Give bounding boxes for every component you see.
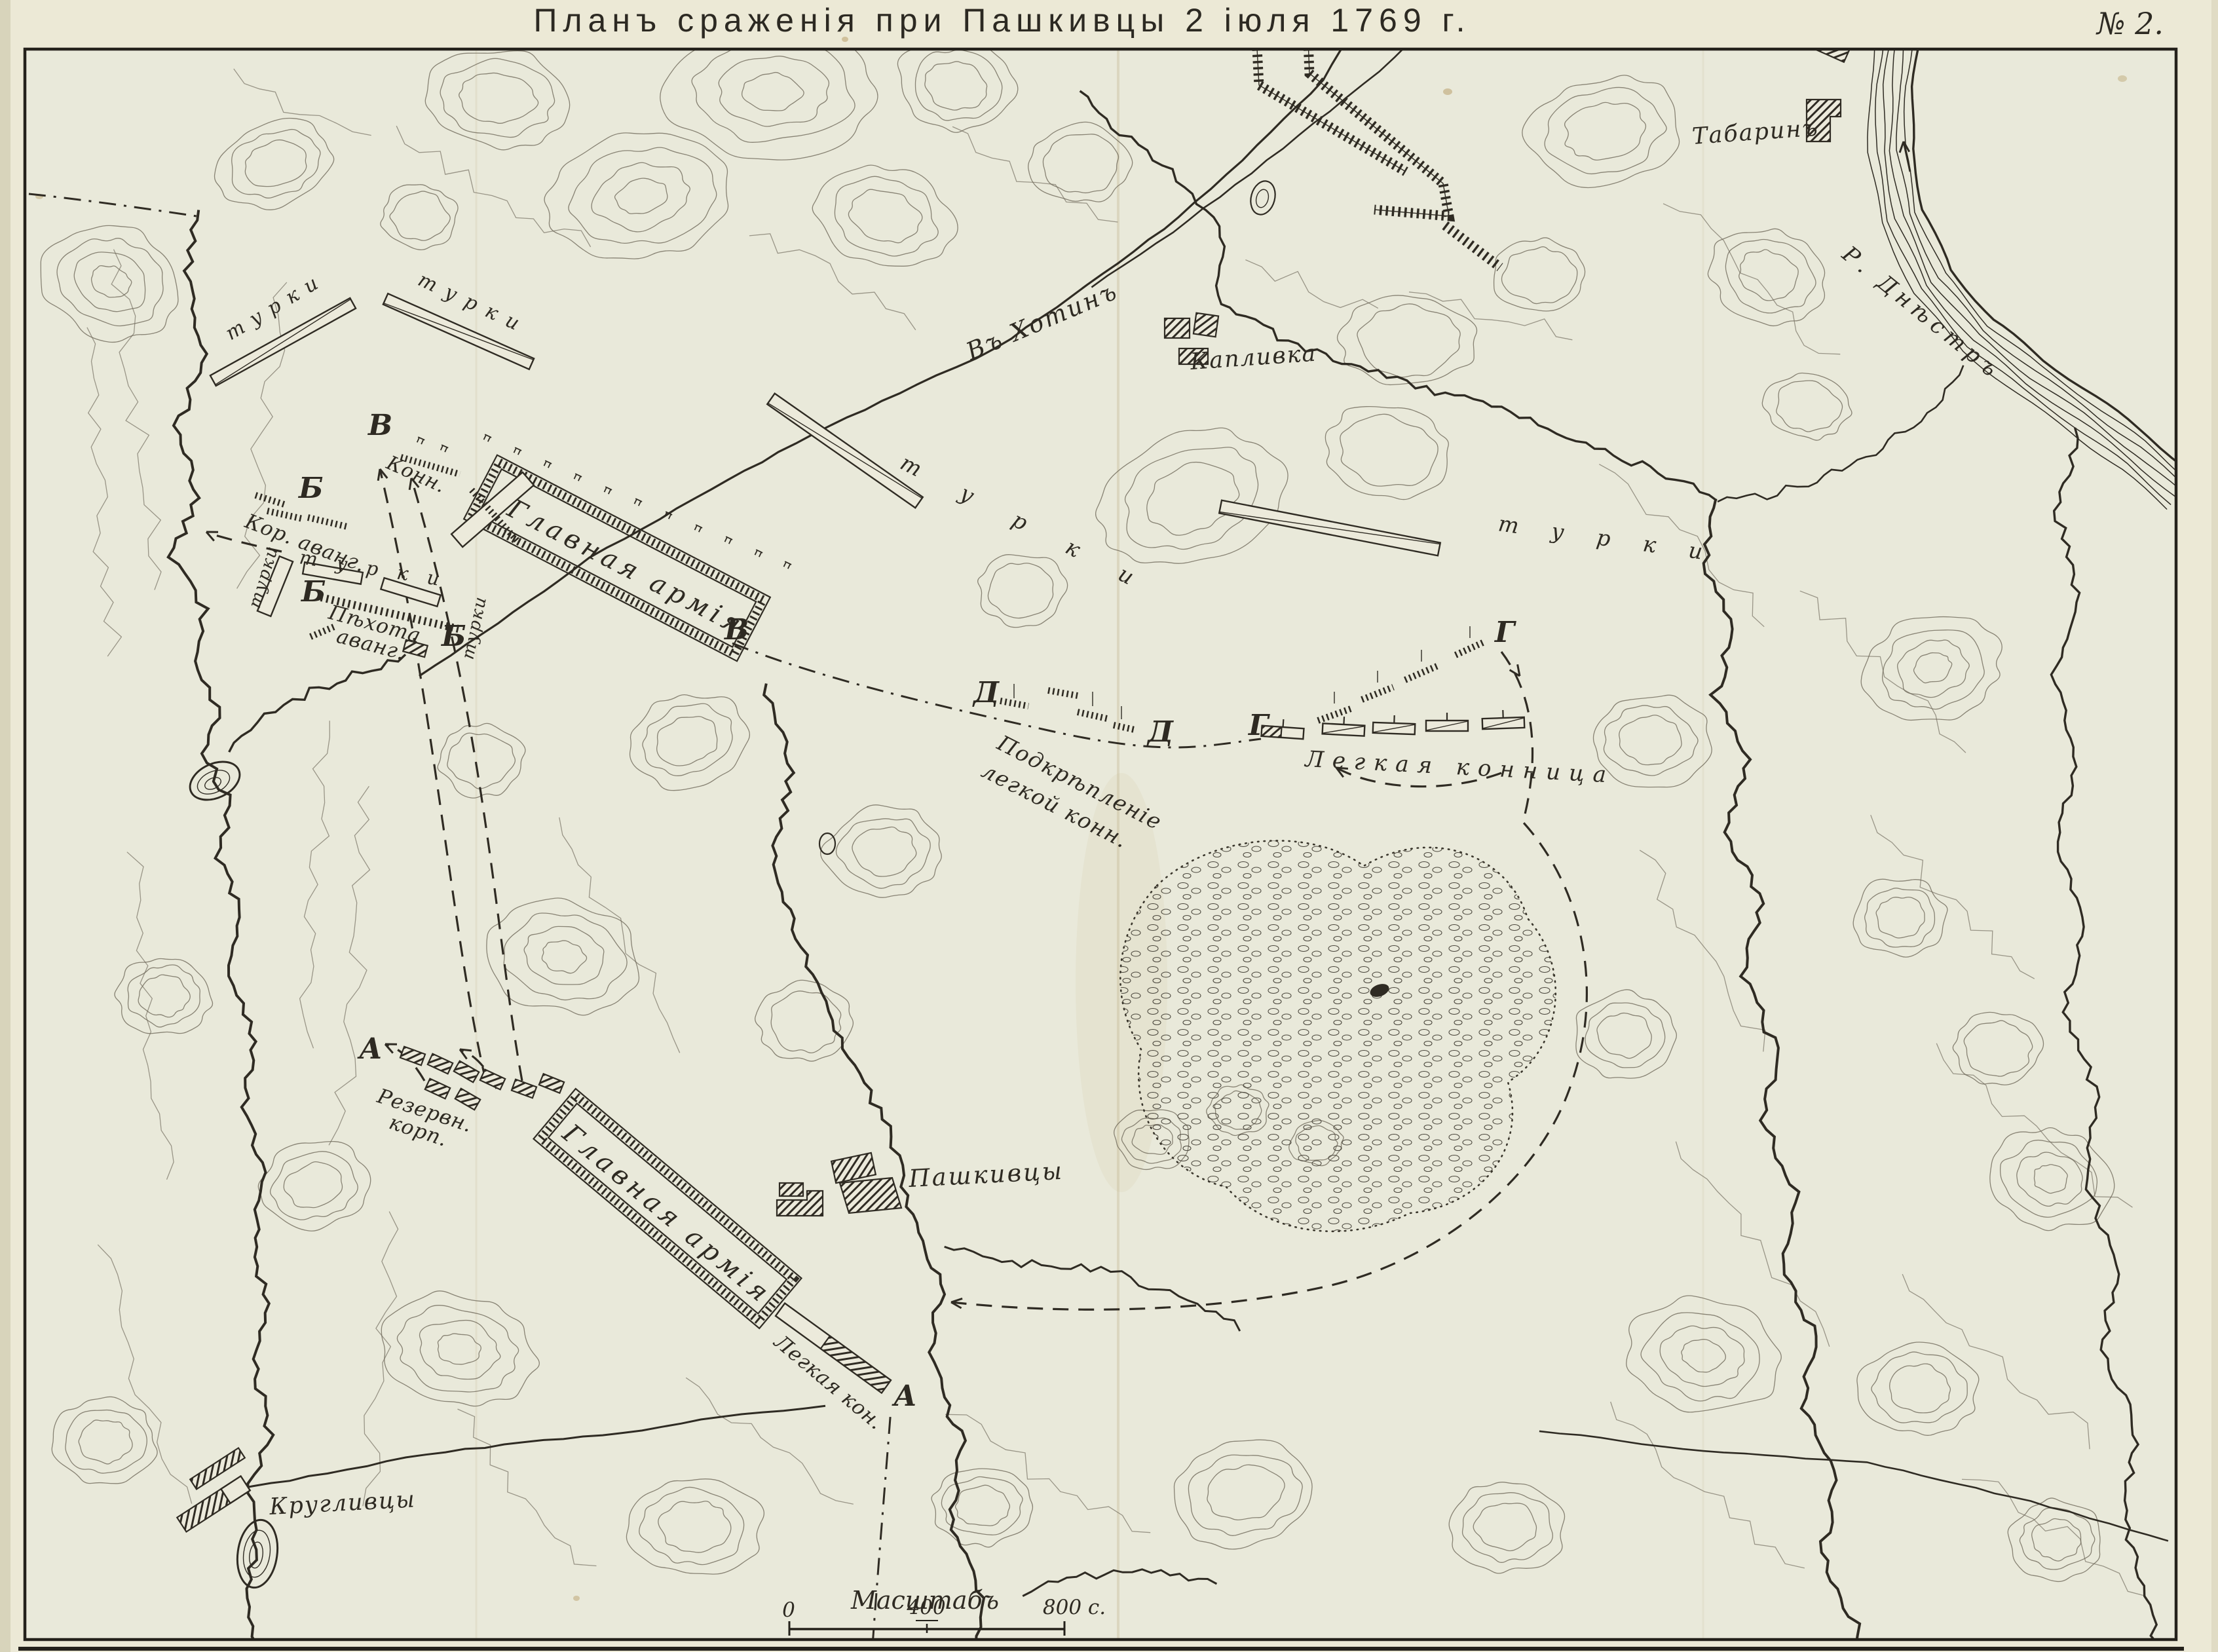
- map-marker-letter: А: [357, 1032, 383, 1066]
- map-canvas: туркитуркит у р к ит у р к ит у р к итур…: [0, 0, 2218, 1652]
- map-marker-letter: Г: [1494, 616, 1516, 649]
- map-marker-letter: А: [892, 1380, 917, 1413]
- map-marker-letter: Д: [1146, 715, 1174, 749]
- scale-tick-400: 400: [906, 1596, 945, 1619]
- map-marker-letter: Б: [297, 472, 324, 505]
- scale-tick-800: 800 с.: [1043, 1596, 1106, 1619]
- map-marker-letter: Б: [440, 620, 466, 653]
- map-marker-letter: В: [367, 409, 392, 442]
- scale-tick-0: 0: [782, 1598, 795, 1622]
- page-title: Планъ сраженія при Пашкивцы 2 іюля 1769 …: [533, 2, 1471, 39]
- map-marker-letter: Г: [1247, 709, 1270, 742]
- map-marker-letter: В: [723, 613, 749, 647]
- plate-number: № 2.: [2096, 6, 2164, 41]
- scanned-battle-map: туркитуркит у р к ит у р к ит у р к итур…: [0, 0, 2218, 1652]
- map-marker-letter: Б: [300, 575, 326, 609]
- map-marker-letter: Д: [972, 676, 1000, 709]
